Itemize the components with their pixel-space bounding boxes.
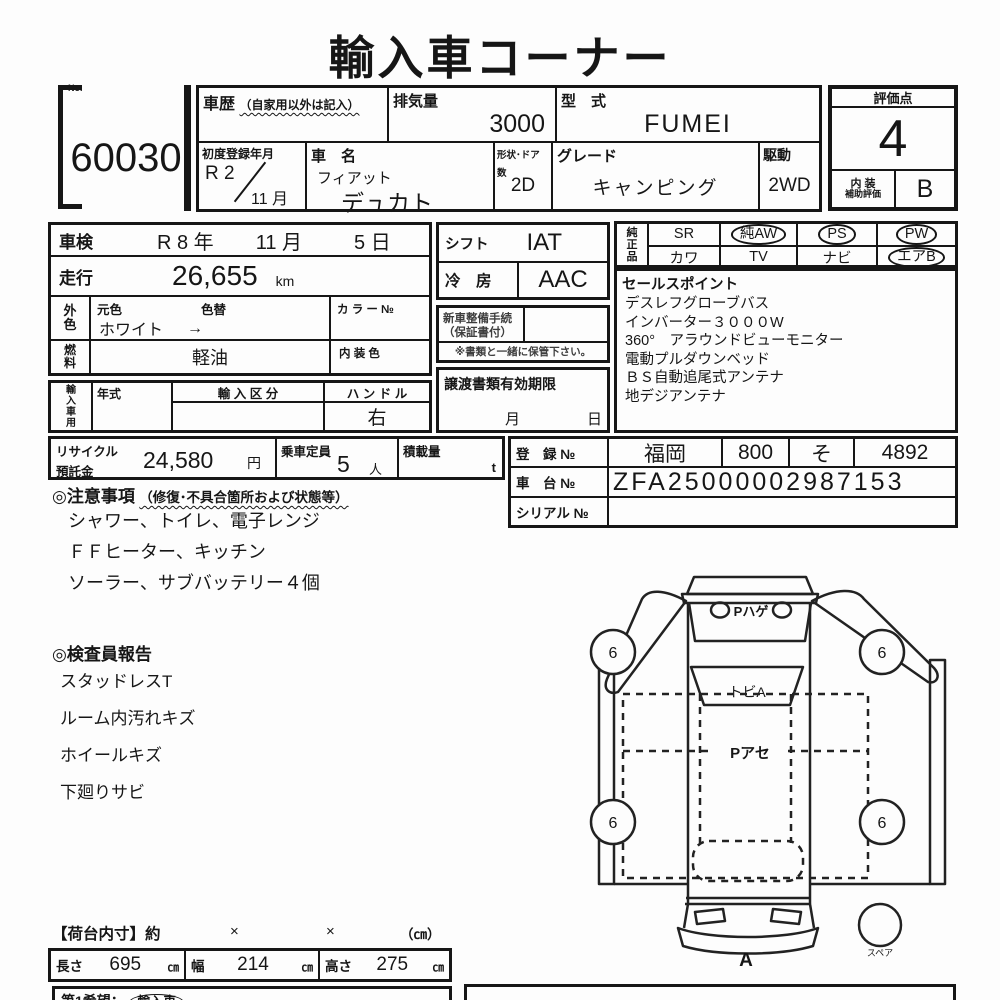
roof-label: Pアセ	[730, 745, 770, 762]
mileage-unit: km	[276, 273, 295, 295]
ac-label: 冷 房	[439, 269, 492, 291]
roof-outline	[623, 694, 868, 878]
mileage-value: 26,655	[172, 260, 258, 292]
maintenance-label-cell: 新車整備手続 （保証書付）	[439, 308, 525, 341]
cargo-times-2: ×	[326, 923, 335, 940]
wish-label: 第1希望：	[61, 993, 125, 1000]
maintenance-label-2: （保証書付）	[443, 326, 523, 340]
equipment-item-1: 純AW	[731, 224, 786, 245]
wheel-mark: 6	[609, 645, 618, 662]
maintenance-value-cell	[525, 308, 607, 341]
inspector-lines: スタッドレスT ルーム内汚れキズ ホイールキズ 下廻りサビ	[60, 663, 196, 811]
fuel-label-2: 料	[64, 357, 76, 370]
score-box: 評価点 4 内 装 補助評価 B	[828, 85, 958, 211]
wish-box: 第1希望： 輸入車	[52, 986, 452, 1000]
transfer-month-label: 月	[505, 408, 520, 429]
reg-kana: そ	[790, 439, 855, 466]
notes-heading: ◎注意事項 （修復･不具合箇所および状態等）	[52, 482, 349, 507]
import-label: 輸入車用	[64, 385, 78, 429]
equipment-grid: SR 純AW PS PW カワ TV ナビ エアB	[649, 224, 955, 265]
cargo-unit-note: （㎝）	[400, 923, 441, 943]
drive-label: 駆動	[763, 147, 791, 163]
cargo-length-unit: ㎝	[168, 959, 185, 979]
serial-label: シリアル №	[511, 498, 609, 525]
headlight-left	[695, 909, 725, 924]
side-panel-right	[930, 660, 945, 884]
color-row: 外 色 元色 色替 ホワイト → カ ラ ー №	[51, 297, 429, 341]
sales-point-line: 360° アラウンドビューモニター	[625, 332, 950, 351]
rear-label: Pハゲ	[734, 604, 769, 619]
header-row-2: 初度登録年月 R 2 11 月 車 名 フィアット デュカト 形状･ドア数 2D…	[199, 143, 819, 209]
cargo-height-value: 275	[352, 954, 433, 976]
sales-points-box: セールスポイント デスレフグローブバス インバーター３０００W 360° アラウ…	[614, 268, 958, 433]
reg-number: 4892	[855, 439, 955, 466]
lot-number: 60030	[70, 136, 182, 181]
inspector-line: ホイールキズ	[60, 737, 196, 774]
notes-line: ソーラー、サブバッテリー４個	[68, 568, 320, 599]
rear-gate-mark-left	[711, 603, 729, 618]
wheel-mark: 6	[609, 815, 618, 832]
equipment-item-6: ナビ	[823, 247, 852, 268]
shift-value: IAT	[527, 229, 563, 257]
maintenance-box: 新車整備手続 （保証書付） ※書類と一緒に保管下さい。	[436, 305, 610, 363]
equipment-table: 純正品 SR 純AW PS PW カワ TV ナビ エアB	[614, 221, 958, 268]
history-label: 車歴	[203, 96, 235, 113]
lot-divider-bar	[184, 85, 191, 211]
model-code-cell: 型 式 FUMEI	[557, 88, 819, 143]
equipment-item-3: PW	[896, 224, 937, 245]
capacity-unit: 人	[369, 459, 382, 478]
equipment-item-5: TV	[749, 249, 768, 265]
cargo-times-1: ×	[230, 923, 239, 940]
first-reg-month: 11 月	[251, 185, 288, 209]
inspector-line: スタッドレスT	[60, 663, 196, 700]
wish-value: 輸入車	[129, 994, 184, 1000]
car-name-cell: 車 名 フィアット デュカト	[307, 143, 495, 209]
shaken-year: R 8 年	[157, 226, 214, 255]
rear-gate-mark-right	[773, 603, 791, 618]
handle-value: 右	[325, 403, 429, 430]
wheel-mark: 6	[878, 645, 887, 662]
reg-region: 福岡	[609, 439, 723, 466]
notes-line: ＦＦヒーター、キッチン	[68, 537, 320, 568]
equipment-item-7: エアB	[888, 247, 945, 268]
serial-row: シリアル №	[511, 498, 955, 525]
cargo-height-label: 高さ	[320, 955, 352, 975]
spare-label: スペア	[867, 948, 893, 958]
equipment-cell: カワ	[649, 247, 721, 268]
shaken-month: 11 月	[256, 226, 302, 255]
import-label-cell: 輸入車用	[51, 383, 93, 430]
front-label: A	[739, 950, 753, 970]
first-reg-year: R 2	[205, 163, 235, 185]
capacity-cell: 乗車定員 5 人	[277, 439, 399, 477]
import-class-label: 輸 入 区 分	[173, 383, 323, 403]
handle-cell: ハ ン ド ル 右	[325, 383, 429, 430]
shaken-day: 5 日	[354, 226, 391, 255]
header-grid: 車歴 （自家用以外は記入） 排気量 3000 型 式 FUMEI 初度登録年月 …	[196, 85, 822, 212]
first-reg-label: 初度登録年月	[202, 147, 274, 161]
interior-color-cell: 内 装 色	[331, 341, 429, 373]
equipment-cell: 純AW	[721, 224, 798, 245]
recycle-box: リサイクル 預託金 24,580 円 乗車定員 5 人 積載量 t	[48, 436, 505, 480]
keep-note: ※書類と一緒に保管下さい。	[439, 341, 607, 360]
score-interior-label-2: 補助評価	[845, 190, 881, 199]
transfer-day-label: 日	[587, 408, 602, 429]
import-box: 輸入車用 年式 輸 入 区 分 ハ ン ド ル 右	[48, 380, 432, 433]
base-color-value: ホワイト	[99, 316, 163, 340]
recycle-cell: リサイクル 預託金 24,580 円	[51, 439, 277, 477]
headlight-right	[771, 909, 801, 924]
chassis-label: 車 台 №	[511, 468, 609, 496]
fuel-row: 燃 料 軽油 内 装 色	[51, 341, 429, 373]
shift-label: シフト	[439, 233, 489, 254]
ac-row: 冷 房 AAC	[439, 263, 607, 297]
rear-bumper	[687, 577, 813, 594]
equipment-cell: TV	[721, 247, 798, 268]
mileage-row: 走行 26,655 km	[51, 257, 429, 297]
car-model: デュカト	[341, 184, 433, 218]
recycle-value: 24,580	[143, 447, 213, 474]
notes-lines: シャワー、トイレ、電子レンジ ＦＦヒーター、キッチン ソーラー、サブバッテリー４…	[68, 506, 320, 599]
sales-point-line: インバーター３０００W	[625, 314, 950, 333]
load-cell: 積載量 t	[399, 439, 502, 477]
notes-heading-text: ◎注意事項	[52, 487, 135, 506]
model-code-label: 型 式	[561, 93, 606, 110]
sales-points-label: セールスポイント	[622, 273, 950, 294]
chassis-row: 車 台 № ZFA25000002987153	[511, 468, 955, 498]
equipment-item-0: SR	[674, 226, 694, 242]
rear-window-label: トビA	[728, 684, 766, 700]
equipment-cell: エアB	[878, 247, 955, 268]
history-note: （自家用以外は記入）	[239, 98, 359, 112]
recycle-label-2: 預託金	[56, 461, 94, 480]
front-side-right	[810, 904, 814, 928]
equipment-label: 純正品	[626, 227, 639, 263]
page-title: 輸入車コーナー	[280, 22, 720, 88]
mileage-label: 走行	[51, 264, 117, 289]
color-label: 外 色	[51, 297, 91, 339]
model-code-value: FUMEI	[557, 110, 819, 139]
left-panel: 車検 R 8 年 11 月 5 日 走行 26,655 km 外 色 元色 色替…	[48, 222, 432, 376]
grade-cell: グレード キャンピング	[553, 143, 760, 209]
maintenance-label-1: 新車整備手続	[443, 312, 523, 326]
inspector-heading: ◎検査員報告	[52, 640, 152, 665]
spare-tire	[859, 904, 901, 946]
front-side-left	[684, 904, 688, 928]
equipment-row-1: SR 純AW PS PW	[649, 224, 955, 247]
color-label-1: 外	[63, 304, 76, 318]
capacity-value: 5	[337, 451, 350, 478]
notes-heading-note: （修復･不具合箇所および状態等）	[139, 490, 348, 505]
load-label: 積載量	[403, 441, 441, 460]
cargo-height-unit: ㎝	[433, 959, 450, 979]
first-reg-cell: 初度登録年月 R 2 11 月	[199, 143, 307, 209]
grade-label: グレード	[557, 148, 617, 165]
reg-class: 800	[723, 439, 790, 466]
color-change-label: 色替	[201, 299, 226, 318]
drive-value: 2WD	[760, 175, 819, 197]
lot-no-label: No.	[68, 83, 83, 93]
sales-point-line: 電動プルダウンベッド	[625, 351, 950, 370]
color-no-cell: カ ラ ー №	[331, 297, 429, 339]
interior-color-label: 内 装 色	[339, 348, 380, 360]
rear-bumper-band	[682, 594, 818, 603]
wheel-mark: 6	[878, 815, 887, 832]
sales-point-line: 地デジアンテナ	[625, 388, 950, 407]
cargo-table: 長さ 695 ㎝ 幅 214 ㎝ 高さ 275 ㎝	[48, 948, 452, 982]
cargo-width-label: 幅	[186, 955, 205, 975]
year-type-cell: 年式	[93, 383, 173, 430]
score-interior-value: B	[896, 171, 954, 207]
fuel-value: 軽油	[91, 341, 331, 373]
inspector-line: ルーム内汚れキズ	[60, 700, 196, 737]
chassis-value: ZFA25000002987153	[609, 468, 955, 496]
displacement-value: 3000	[489, 110, 545, 139]
handle-label: ハ ン ド ル	[325, 383, 429, 403]
drive-cell: 駆動 2WD	[760, 143, 819, 209]
sales-point-line: ＢＳ自動追尾式アンテナ	[625, 369, 950, 388]
score-interior-row: 内 装 補助評価 B	[832, 171, 954, 207]
inspector-line: 下廻りサビ	[60, 774, 196, 811]
equipment-cell: ナビ	[798, 247, 878, 268]
import-class-cell: 輸 入 区 分	[173, 383, 325, 430]
color-label-2: 色	[63, 318, 76, 332]
cargo-width-cell: 幅 214 ㎝	[186, 951, 320, 979]
sales-point-line: デスレフグローブバス	[625, 295, 950, 314]
body-doors-value: 2D	[495, 175, 551, 197]
reg-no-row: 登 録 № 福岡 800 そ 4892	[511, 439, 955, 468]
cargo-length-label: 長さ	[51, 955, 83, 975]
windshield-outline	[693, 841, 803, 881]
recycle-label-1: リサイクル	[56, 441, 118, 460]
vehicle-diagram: Pハゲ トビA Pアセ A	[575, 558, 965, 970]
cargo-heading: 【荷台内寸】約	[52, 922, 161, 944]
cargo-length-cell: 長さ 695 ㎝	[51, 951, 186, 979]
car-name-label: 車 名	[311, 148, 356, 165]
color-value-cell: 元色 色替 ホワイト →	[91, 297, 331, 339]
body-doors-cell: 形状･ドア数 2D	[495, 143, 553, 209]
score-interior-label: 内 装 補助評価	[832, 171, 896, 207]
import-class-value	[173, 403, 323, 430]
cargo-width-value: 214	[205, 954, 302, 976]
ac-label-cell: 冷 房	[439, 263, 519, 297]
shaken-row: 車検 R 8 年 11 月 5 日	[51, 225, 429, 257]
ac-value: AAC	[519, 263, 607, 297]
equipment-row-2: カワ TV ナビ エアB	[649, 247, 955, 268]
equipment-cell: SR	[649, 224, 721, 245]
score-label: 評価点	[832, 89, 954, 108]
grade-value: キャンピング	[553, 173, 758, 200]
member-box	[464, 984, 956, 1000]
registration-box: 登 録 № 福岡 800 そ 4892 車 台 № ZFA25000002987…	[508, 436, 958, 528]
equipment-item-2: PS	[818, 224, 855, 245]
auction-sheet: 輸入車コーナー No. 60030 車歴 （自家用以外は記入） 排気量 3000…	[0, 0, 1000, 1000]
displacement-cell: 排気量 3000	[389, 88, 557, 143]
transfer-label: 譲渡書類有効期限	[444, 374, 556, 394]
notes-line: シャワー、トイレ、電子レンジ	[68, 506, 320, 537]
header-row-1: 車歴 （自家用以外は記入） 排気量 3000 型 式 FUMEI	[199, 88, 819, 143]
score-value: 4	[832, 108, 954, 171]
transfer-box: 譲渡書類有効期限 月 日	[436, 367, 610, 433]
equipment-cell: PW	[878, 224, 955, 245]
maintenance-top: 新車整備手続 （保証書付）	[439, 308, 607, 341]
serial-value	[609, 498, 955, 525]
equipment-item-4: カワ	[670, 247, 699, 268]
fuel-label: 燃 料	[51, 341, 91, 373]
cargo-height-cell: 高さ 275 ㎝	[320, 951, 449, 979]
cargo-width-unit: ㎝	[302, 959, 319, 979]
displacement-label: 排気量	[393, 93, 438, 110]
color-no-label: カ ラ ー №	[337, 304, 394, 316]
shift-row: シフト IAT	[439, 225, 607, 263]
equipment-label-cell: 純正品	[617, 224, 649, 265]
cargo-length-value: 695	[83, 954, 168, 976]
equipment-cell: PS	[798, 224, 878, 245]
color-arrow: →	[187, 320, 203, 338]
history-cell: 車歴 （自家用以外は記入）	[199, 88, 389, 143]
capacity-label: 乗車定員	[281, 441, 331, 460]
shaken-label: 車検	[51, 228, 117, 253]
load-unit: t	[492, 460, 496, 475]
reg-no-label: 登 録 №	[511, 439, 609, 466]
year-type-label: 年式	[97, 387, 121, 401]
shift-ac-box: シフト IAT 冷 房 AAC	[436, 222, 610, 300]
recycle-unit: 円	[247, 453, 261, 473]
